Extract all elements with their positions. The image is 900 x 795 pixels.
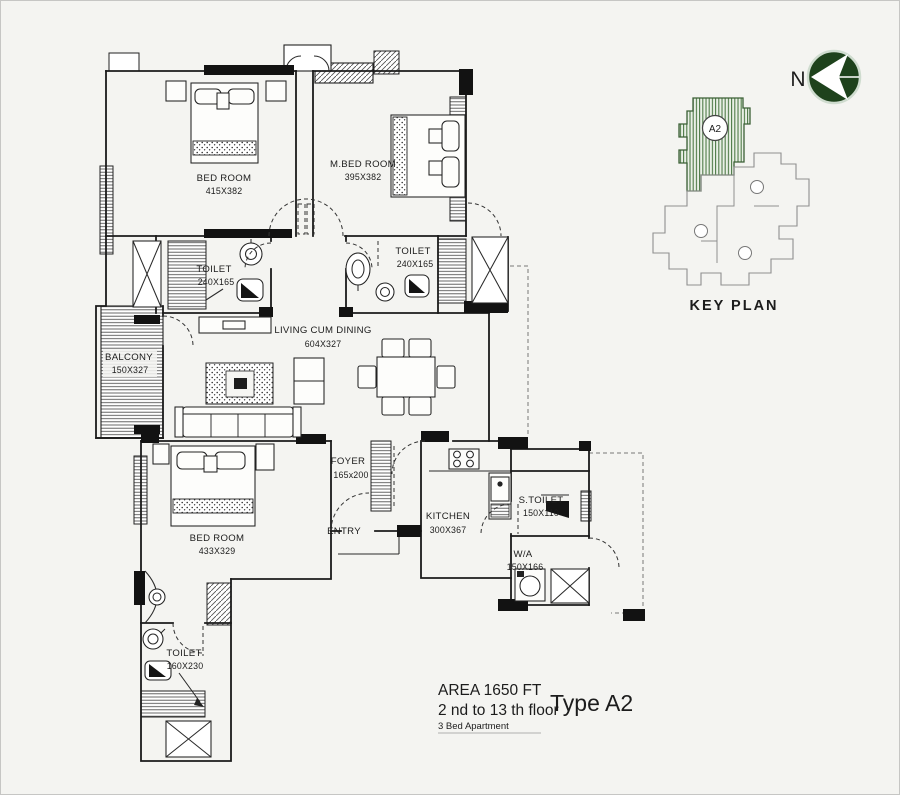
wc-icon: [405, 275, 429, 297]
toilet2-ledge-hatch: [438, 239, 466, 303]
washing-machine-icon: [515, 569, 545, 601]
room-label-toilet-2: TOILET: [395, 246, 430, 257]
room-label-kitchen: KITCHEN: [426, 511, 470, 522]
stove-icon: [449, 449, 479, 469]
toilet1-ledge-hatch: [168, 241, 206, 309]
room-label-bedroom-3: BED ROOM: [190, 533, 245, 544]
key-plan: N A2 KEY PLAN: [653, 51, 860, 314]
room-dims-toilet-1: 240X165: [198, 277, 235, 287]
north-arrow-icon: [808, 51, 860, 103]
room-label-balcony: BALCONY: [105, 352, 153, 363]
type-label: Type A2: [550, 690, 633, 716]
room-label-s-toilet: S.TOILET: [519, 495, 564, 506]
hatched-zones: [100, 45, 591, 717]
keyplan-unit-marker: [739, 247, 752, 260]
foyer-cabinet-hatch: [371, 441, 391, 511]
apartment-subtitle-text: 3 Bed Apartment: [438, 721, 509, 732]
room-dims-wa: 150X166: [507, 562, 544, 572]
room-dims-master-bedroom: 395X382: [345, 172, 382, 182]
shaft-box: [472, 237, 508, 303]
room-label-wa: W/A: [513, 549, 532, 560]
floor-plan-svg: BED ROOM 415X382 M.BED ROOM 395X382 TOIL…: [1, 1, 900, 795]
dining-table-icon: [358, 339, 455, 415]
bed-icon: [166, 81, 286, 163]
room-label-living: LIVING CUM DINING: [274, 325, 371, 336]
room-dims-s-toilet: 150X110: [523, 508, 559, 518]
keyplan-unit-marker: [751, 181, 764, 194]
keyplan-title: KEY PLAN: [689, 298, 778, 314]
room-dims-toilet-2: 240X165: [397, 259, 434, 269]
master-bed-icon: [391, 115, 465, 197]
washbasin-pedestal-icon: [346, 253, 370, 291]
room-label-foyer: FOYER: [331, 456, 366, 467]
washbasin-icon: [376, 283, 394, 301]
shaft-box: [166, 721, 211, 757]
washbasin-icon: [149, 589, 165, 605]
area-text: AREA 1650 FT: [438, 682, 542, 699]
keyplan-unit-marker: [695, 225, 708, 238]
sink-icon: [489, 473, 511, 519]
wardrobe-hatch: [207, 583, 231, 625]
cabinet: [294, 358, 324, 404]
room-dims-living: 604X327: [305, 339, 342, 349]
bed-icon: [153, 444, 274, 526]
room-dims-bedroom-1: 415X382: [206, 186, 243, 196]
floors-text: 2 nd to 13 th floor: [438, 702, 559, 719]
room-dims-kitchen: 300X367: [430, 525, 467, 535]
washbasin-icon: [143, 629, 165, 649]
room-label-toilet-3: TOILET: [166, 648, 201, 659]
north-label: N: [790, 68, 805, 91]
sofa-icon: [175, 407, 301, 437]
keyplan-a2-badge-label: A2: [709, 124, 722, 135]
tv-console: [199, 317, 271, 333]
floor-plan-sheet: BED ROOM 415X382 M.BED ROOM 395X382 TOIL…: [0, 0, 900, 795]
room-label-bedroom-1: BED ROOM: [197, 173, 252, 184]
entry-label: ENTRY: [327, 526, 361, 537]
top-left-box: [109, 53, 139, 71]
room-label-toilet-1: TOILET: [196, 264, 231, 275]
shaft-box: [551, 569, 589, 603]
rug: [206, 363, 273, 404]
info-block: AREA 1650 FT 2 nd to 13 th floor 3 Bed A…: [438, 682, 633, 733]
room-dims-toilet-3: 160X230: [167, 661, 204, 671]
room-dims-foyer: 165x200: [333, 470, 368, 480]
shaft-box: [133, 241, 161, 307]
keyplan-unit-a2-shape: [679, 98, 750, 191]
room-label-master-bedroom: M.BED ROOM: [330, 159, 396, 170]
wc-icon: [237, 279, 263, 301]
room-dims-balcony: 150X327: [112, 365, 149, 375]
room-dims-bedroom-3: 433X329: [199, 546, 236, 556]
